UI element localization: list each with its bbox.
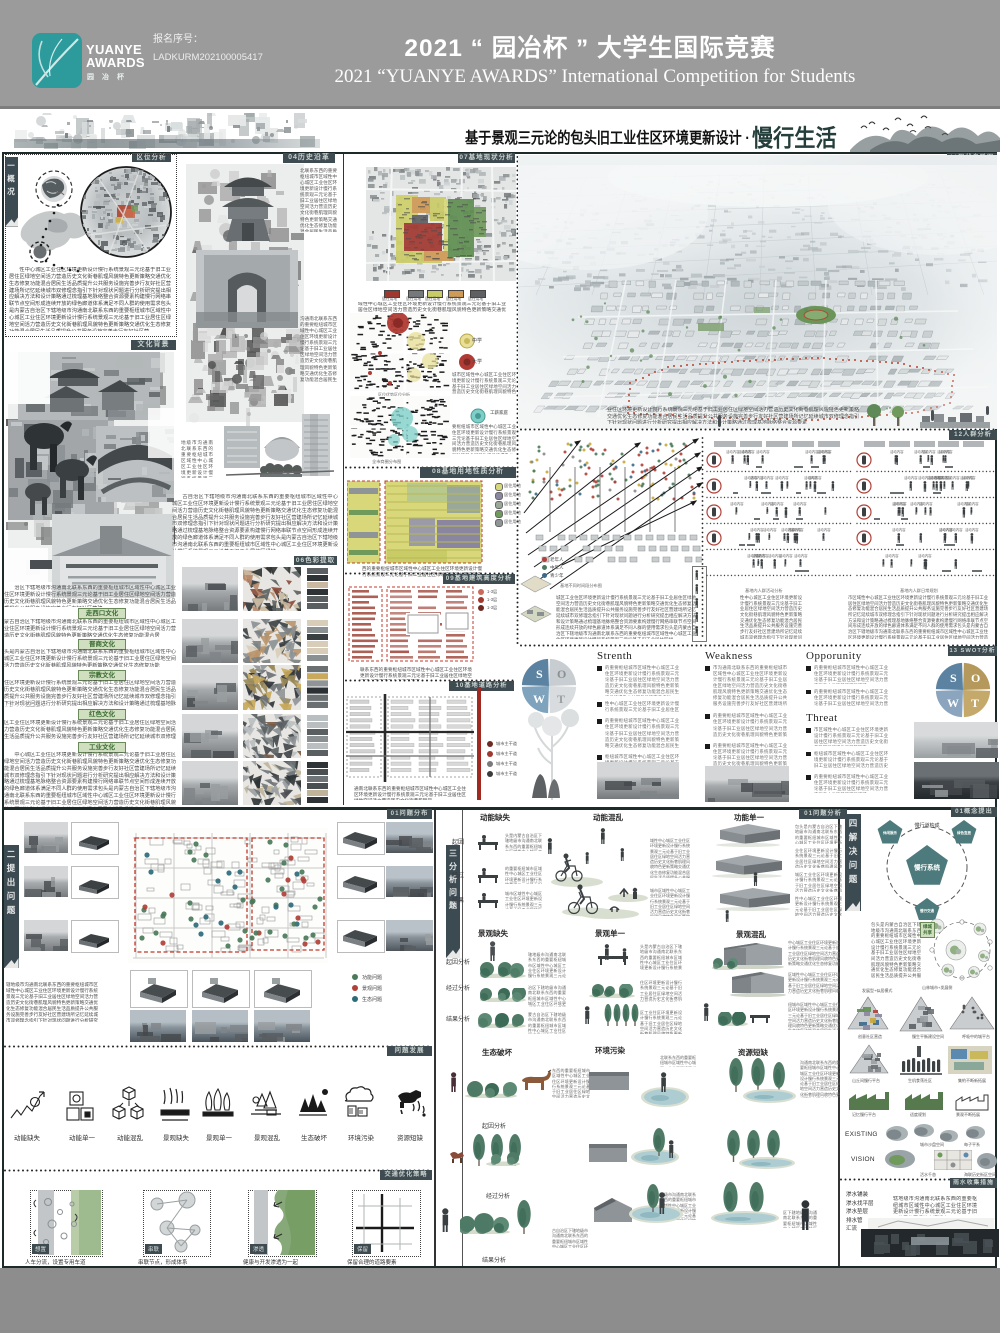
- svg-text:O: O: [971, 671, 980, 685]
- svg-text:慢行道构成: 慢行道构成: [914, 822, 939, 829]
- svg-text:休闲娱乐: 休闲娱乐: [882, 830, 897, 835]
- svg-text:W: W: [947, 696, 959, 710]
- svg-text:S: S: [536, 667, 543, 681]
- svg-text:慢行交通: 慢行交通: [920, 908, 934, 913]
- svg-text:慢行系统: 慢行系统: [914, 862, 941, 871]
- svg-text:O: O: [557, 667, 566, 681]
- svg-text:绿色宜居: 绿色宜居: [957, 830, 971, 835]
- svg-text:S: S: [950, 671, 957, 685]
- svg-text:T: T: [971, 696, 979, 710]
